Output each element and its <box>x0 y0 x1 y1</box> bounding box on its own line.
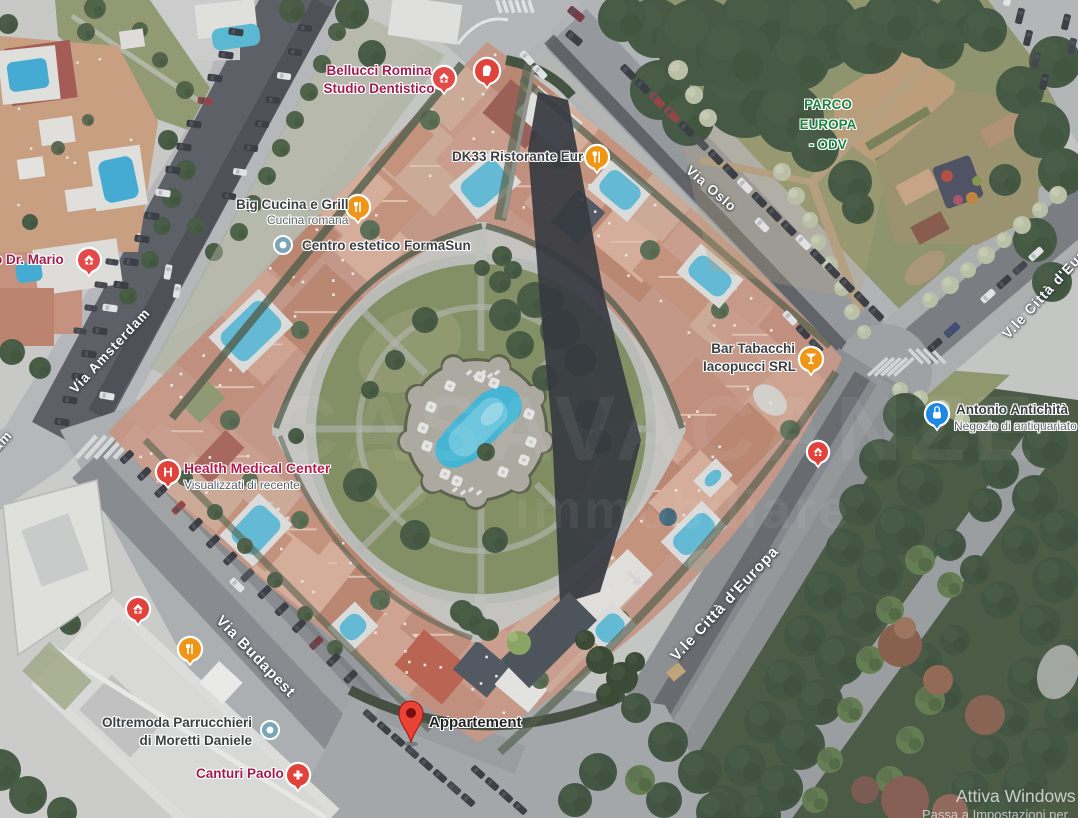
svg-text:H: H <box>163 465 173 480</box>
